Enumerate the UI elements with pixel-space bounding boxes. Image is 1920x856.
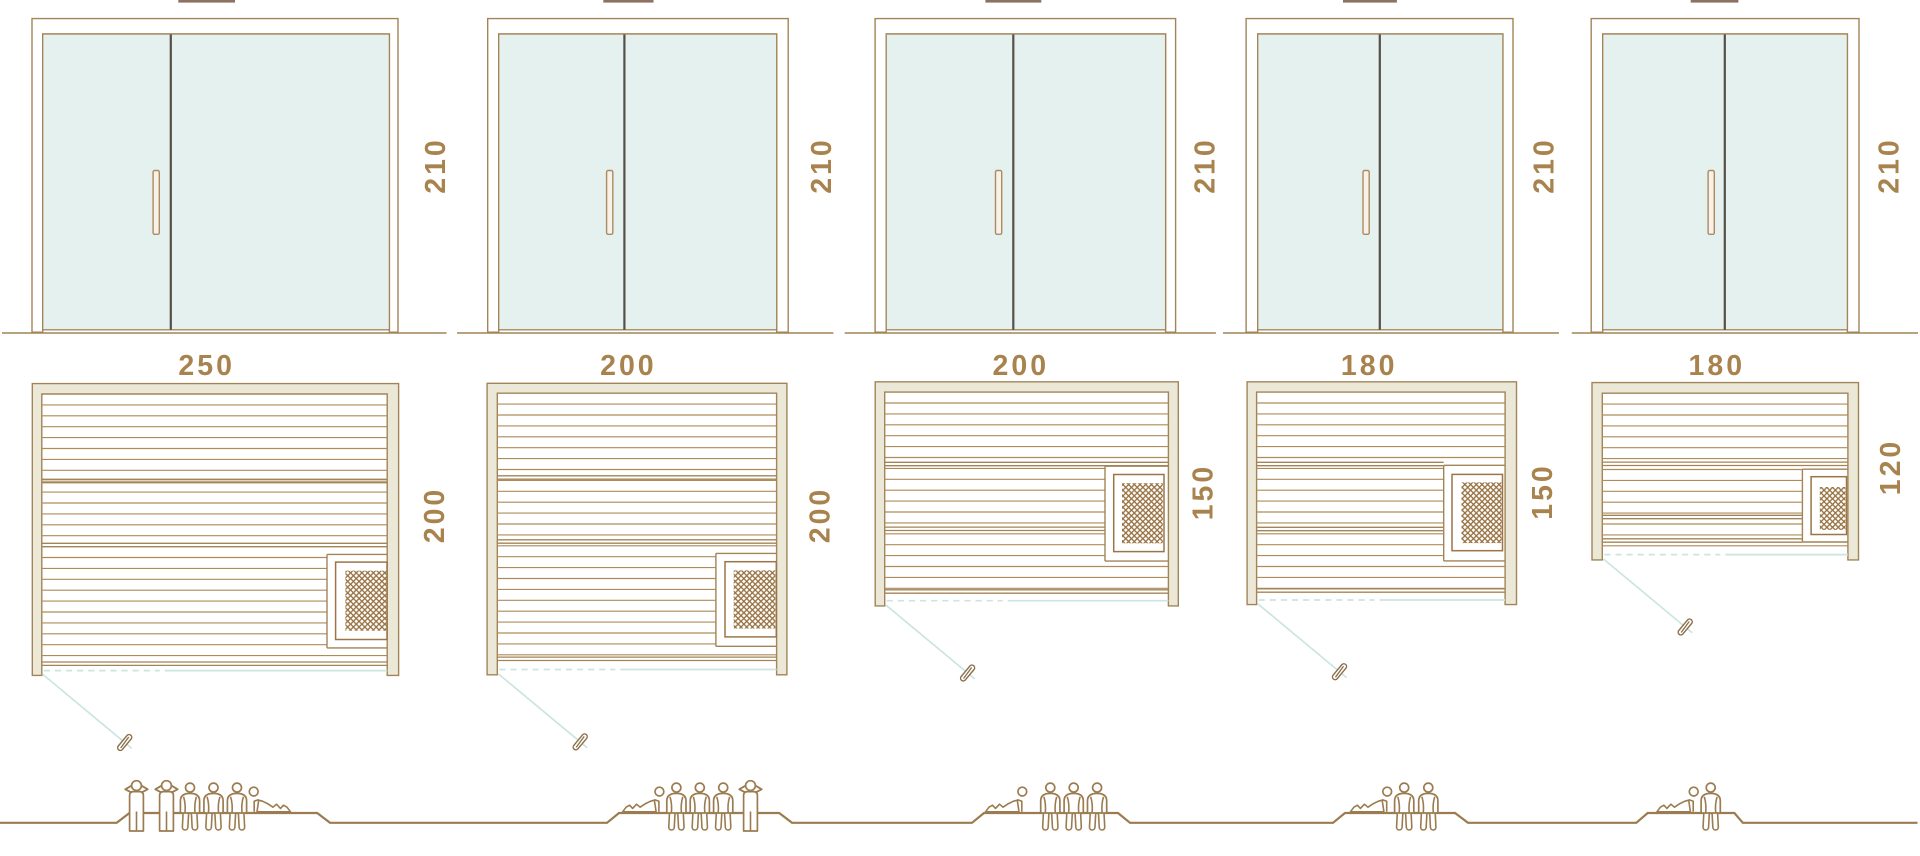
svg-text:210: 210 bbox=[806, 137, 838, 194]
svg-text:210: 210 bbox=[1529, 137, 1561, 194]
svg-text:150: 150 bbox=[1188, 464, 1220, 521]
svg-text:210: 210 bbox=[1874, 137, 1906, 194]
svg-text:200: 200 bbox=[805, 487, 837, 544]
svg-text:200: 200 bbox=[993, 350, 1050, 382]
svg-text:200: 200 bbox=[419, 487, 451, 544]
svg-text:150: 150 bbox=[1527, 463, 1559, 520]
svg-text:180: 180 bbox=[1689, 350, 1746, 382]
svg-text:210: 210 bbox=[1190, 137, 1222, 194]
svg-text:200: 200 bbox=[600, 350, 657, 382]
svg-text:180: 180 bbox=[1341, 350, 1398, 382]
svg-text:250: 250 bbox=[178, 350, 235, 382]
svg-text:210: 210 bbox=[420, 137, 452, 194]
svg-text:120: 120 bbox=[1875, 439, 1907, 496]
